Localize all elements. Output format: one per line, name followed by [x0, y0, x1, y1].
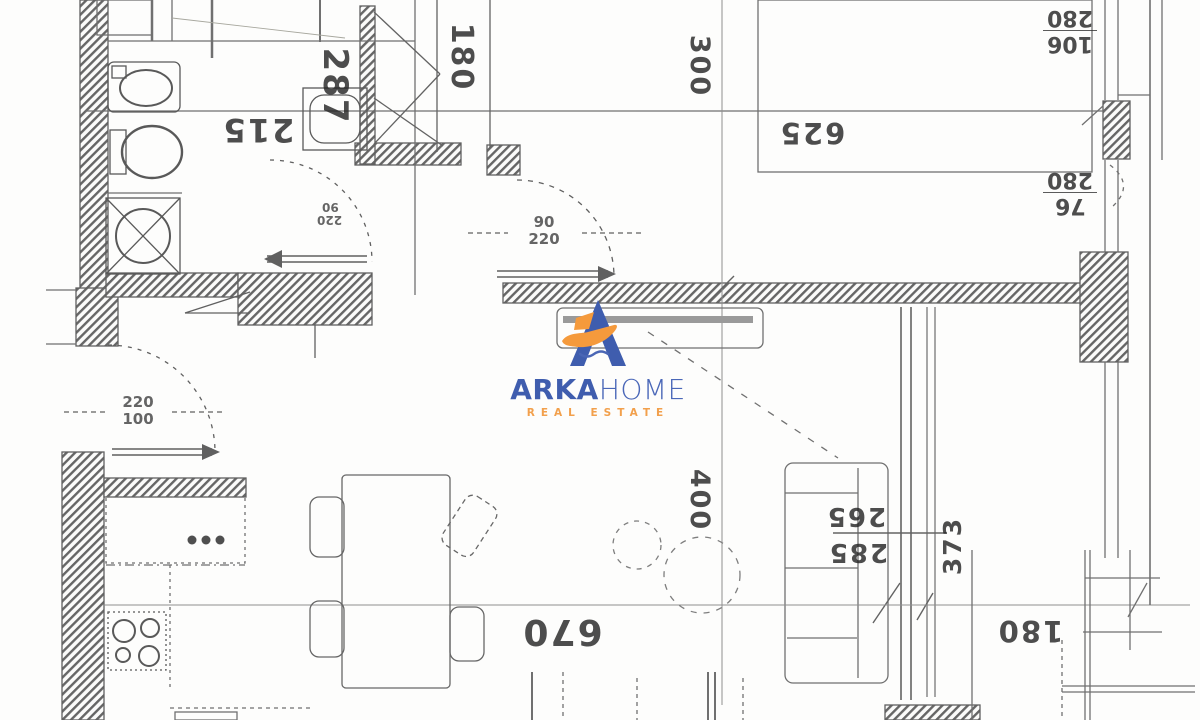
entry-door-width: 220: [122, 394, 153, 411]
dim-window1: 280 106: [1040, 6, 1100, 55]
dim-window2: 280 76: [1040, 168, 1100, 217]
brand-primary: ARKA: [510, 376, 599, 404]
washbasin: [108, 62, 180, 112]
dim-hall-width: 215: [213, 112, 303, 148]
kitchen-counter: [106, 497, 313, 720]
dining-table: [342, 475, 450, 688]
dim-bedroom-length: 625: [772, 117, 852, 149]
window1-width: 280: [1047, 6, 1093, 29]
dim-terrace-width: 180: [990, 615, 1070, 647]
dim-living-width: 670: [502, 614, 622, 650]
wc-door-height: 220: [317, 213, 342, 226]
cooktop: [108, 612, 166, 670]
dim-sofa-b: 285: [823, 538, 893, 566]
partition-lines: [901, 307, 935, 700]
dim-wc-door: 90 220: [306, 200, 354, 226]
dim-bedroom-width: 300: [685, 26, 715, 106]
dim-bath-width: 287: [315, 31, 355, 141]
dim-entry-door: 220 100: [108, 394, 168, 427]
washing-machine: [106, 198, 180, 274]
entry-door-height: 100: [122, 411, 153, 428]
dim-sofa-a: 265: [821, 502, 891, 530]
floor-circles: [613, 521, 740, 613]
bottom-cut-lines: [532, 672, 743, 720]
dim-right-wall: 373: [938, 506, 966, 586]
window2-width: 280: [1047, 168, 1093, 191]
dim-niche-width: 180: [445, 12, 479, 102]
floor-plan: 287 215 180 300 625 280 106 280 76 90 22…: [0, 0, 1200, 720]
dim-bedroom-door: 90 220: [516, 214, 572, 247]
window2-height: 76: [1055, 194, 1086, 217]
arka-home-logo-icon: [548, 296, 648, 374]
window1-height: 106: [1047, 32, 1093, 55]
chairs: [310, 492, 500, 661]
brand-secondary: HOME: [599, 376, 686, 404]
toilet: [110, 126, 182, 178]
wc-door-width: 90: [322, 200, 339, 213]
brand-tagline: REAL ESTATE: [527, 407, 669, 419]
arka-home-watermark: ARKAHOME REAL ESTATE: [498, 296, 698, 419]
sofa: [785, 463, 888, 683]
brand-name: ARKAHOME: [510, 376, 686, 404]
dimension-lines: [104, 533, 1190, 623]
wall-bath-bottom: [106, 273, 372, 325]
dim-living-depth: 400: [685, 460, 715, 540]
wall-left-lower: [62, 452, 246, 720]
bedroom-door-width: 90: [534, 214, 555, 231]
bedroom-door-height: 220: [528, 231, 559, 248]
